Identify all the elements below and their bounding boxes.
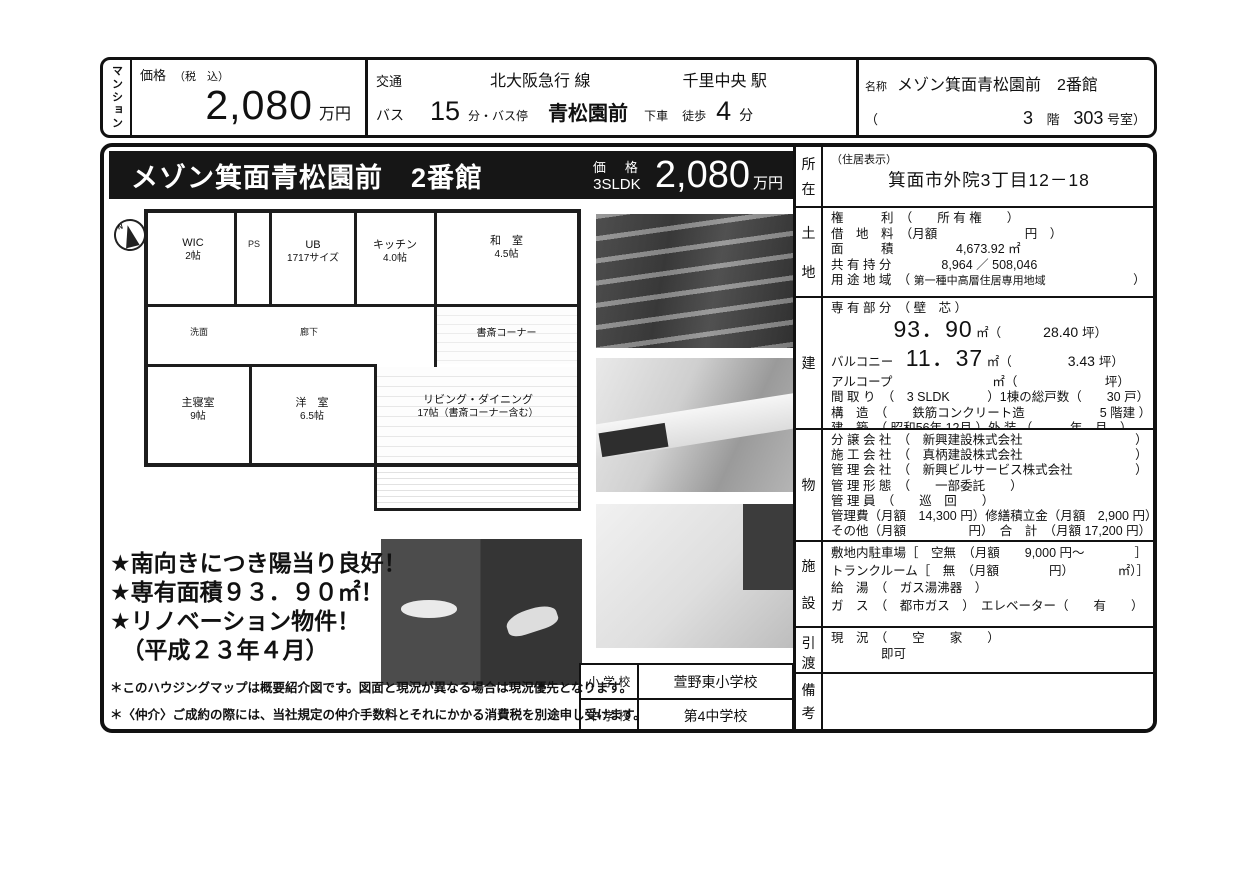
detail-segment: 第一種中高層住居専用地域 bbox=[914, 274, 1046, 290]
detail-segment: トランクルーム［ 無 （月額 円） ㎡）］ bbox=[831, 563, 1149, 581]
feature-line: ★南向きにつき陽当り良好！ bbox=[110, 549, 410, 578]
title-bar-name: メゾン箕面青松園前 2番館 bbox=[131, 156, 593, 195]
detail-row: （住居表示） bbox=[831, 150, 1147, 170]
floor-room-group: 3 階 303 号室） bbox=[1023, 108, 1146, 129]
room-kitchen-size: 4.0帖 bbox=[356, 252, 434, 265]
bus-label: バス bbox=[376, 105, 404, 125]
detail-segment: 3.43 bbox=[1012, 349, 1099, 374]
detail-row: 給 湯 （ ガス湯沸器 ） bbox=[831, 580, 1147, 598]
detail-section-label: 建 bbox=[796, 298, 823, 428]
details-table: 所在（住居表示）箕面市外院3丁目12－18土地権 利 （ 所 有 権 ）借 地 … bbox=[793, 147, 1153, 729]
room-ld-size: 17帖（書斎コーナー含む） bbox=[382, 407, 574, 420]
room-japanese-size: 4.5帖 bbox=[444, 248, 569, 261]
detail-row: 管 理 会 社 （ 新興ビルサービス株式会社 ） bbox=[831, 463, 1147, 478]
detail-row: 敷地内駐車場［ 空無 （月額 9,000 円～ ］ bbox=[831, 545, 1147, 563]
exterior-photo bbox=[596, 214, 794, 348]
detail-segment: 管 理 会 社 （ 新興ビルサービス株式会社 ） bbox=[831, 463, 1148, 478]
detail-row: 面 積 4,673.92 ㎡ bbox=[831, 242, 1147, 258]
disclaimer-line: ＊このハウジングマップは概要紹介図です。図面と現況が異なる場合は現況優先となりま… bbox=[110, 675, 580, 702]
detail-segment: 専 有 部 分 （ 壁 芯 ） bbox=[831, 301, 967, 317]
detail-section: 所在（住居表示）箕面市外院3丁目12－18 bbox=[796, 147, 1153, 206]
detail-segment: 即可 bbox=[831, 647, 906, 663]
detail-section-label: 物 bbox=[796, 430, 823, 540]
room-master-name: 主寝室 bbox=[158, 397, 238, 410]
detail-section: 土地権 利 （ 所 有 権 ）借 地 料 （月額 円 ）面 積 4,673.92… bbox=[796, 206, 1153, 296]
detail-row: 管 理 形 態 （ 一部委託 ） bbox=[831, 479, 1147, 494]
detail-row: 箕面市外院3丁目12－18 bbox=[831, 170, 1147, 190]
feature-list: ★南向きにつき陽当り良好！ ★専有面積９３．９０㎡！ ★リノベーション物件！ （… bbox=[110, 549, 410, 665]
category-vertical-label: マンション bbox=[109, 65, 125, 130]
room-study: 書斎コーナー bbox=[444, 327, 569, 340]
section-label-char: 在 bbox=[802, 179, 816, 199]
section-label-char: 物 bbox=[802, 475, 816, 495]
paren-open: （ bbox=[865, 109, 878, 128]
detail-row: 共 有 持 分 8,964 ／ 508,046 bbox=[831, 258, 1147, 274]
title-bar-price-labels: 価 格 3SLDK bbox=[593, 157, 641, 193]
room-master: 主寝室 9帖 bbox=[158, 397, 238, 423]
room-unit: 号室） bbox=[1107, 112, 1146, 127]
compass-needle bbox=[121, 224, 140, 249]
room-bath: UB 1717サイズ bbox=[274, 239, 352, 265]
detail-segment: 現 況 （ 空 家 ） bbox=[831, 631, 1000, 647]
detail-section-body: 敷地内駐車場［ 空無 （月額 9,000 円～ ］トランクルーム［ 無 （月額 … bbox=[823, 542, 1153, 626]
title-bar-price-unit: 万円 bbox=[753, 172, 783, 193]
room-wic: WIC 2帖 bbox=[158, 237, 228, 263]
wall bbox=[144, 364, 377, 367]
detail-row: 即可 bbox=[831, 647, 1147, 663]
section-label-char: 施 bbox=[802, 556, 816, 576]
title-bar-layout: 3SLDK bbox=[593, 176, 641, 193]
disclaimer-line: ＊〈仲介〉ご成約の際には、当社規定の仲介手数料とそれにかかる消費税を別途申し受け… bbox=[110, 702, 580, 729]
price-unit: 万円 bbox=[319, 100, 351, 124]
room-wic-name: WIC bbox=[158, 237, 228, 250]
detail-segment: （住居表示） bbox=[831, 150, 897, 170]
price-cell: 価格（税 込） 2,080 万円 bbox=[132, 60, 368, 135]
transport-label: 交通 bbox=[376, 71, 402, 90]
room-study-name: 書斎コーナー bbox=[444, 327, 569, 340]
detail-section: 物分 譲 会 社 （ 新興建設株式会社 ）施 工 会 社 （ 真柄建設株式会社 … bbox=[796, 428, 1153, 540]
detail-segment: アルコープ ㎡（ 坪） bbox=[831, 375, 1130, 391]
room-corridor: 廊下 bbox=[284, 327, 334, 337]
walk-minutes: 4 bbox=[716, 96, 731, 127]
section-label-char: 所 bbox=[802, 154, 816, 174]
floor-plan: WIC 2帖 PS UB 1717サイズ キッチン 4.0帖 和 室 4.5帖 bbox=[144, 209, 581, 529]
price-value: 2,080 bbox=[205, 82, 313, 129]
main-box: メゾン箕面青松園前 2番館 価 格 3SLDK 2,080 万円 N bbox=[100, 143, 1157, 733]
detail-section-label: 備考 bbox=[796, 674, 823, 729]
detail-segment: 用 途 地 域 （ bbox=[831, 273, 914, 289]
section-label-char: 備 bbox=[802, 680, 816, 700]
transport-cell: 交通 北大阪急行 線 千里中央 駅 バス 15 分・バス停 青松園前 下車 徒歩… bbox=[368, 60, 859, 135]
category-cell: マンション bbox=[103, 60, 132, 135]
detail-row: 93．90 ㎡（ 28.40 坪） bbox=[831, 317, 1147, 346]
section-label-char: 渡 bbox=[802, 653, 816, 672]
schools-table: 小 学 校 萱野東小学校 中 学 校 第4中学校 bbox=[579, 663, 794, 733]
detail-section-body: （住居表示）箕面市外院3丁目12－18 bbox=[823, 147, 1153, 206]
detail-section: 備考 bbox=[796, 672, 1153, 729]
detail-section-body: 分 譲 会 社 （ 新興建設株式会社 ）施 工 会 社 （ 真柄建設株式会社 ）… bbox=[823, 430, 1153, 540]
bathtub-photo bbox=[596, 504, 794, 648]
room-washroom-name: 洗面 bbox=[174, 327, 224, 337]
detail-segment: 分 譲 会 社 （ 新興建設株式会社 ） bbox=[831, 433, 1148, 448]
name-row: 名称 メゾン箕面青松園前 2番館 bbox=[865, 65, 1098, 95]
title-bar-price-value: 2,080 bbox=[655, 154, 750, 197]
room-bath-size: 1717サイズ bbox=[274, 252, 352, 265]
kitchen-photo bbox=[596, 358, 794, 492]
detail-segment: 坪） bbox=[1099, 350, 1124, 375]
room-japanese-name: 和 室 bbox=[444, 235, 569, 248]
washbasin-toilet-photo bbox=[381, 539, 582, 685]
wall bbox=[249, 364, 252, 467]
room-living-dining: リビング・ダイニング 17帖（書斎コーナー含む） bbox=[382, 394, 574, 420]
title-bar-price-label: 価 格 bbox=[593, 157, 641, 176]
detail-segment: 施 工 会 社 （ 真柄建設株式会社 ） bbox=[831, 448, 1148, 463]
detail-segment: ㎡（ bbox=[973, 321, 1001, 346]
detail-row: 管理費（月額 14,300 円）修繕積立金（月額 2,900 円） bbox=[831, 509, 1147, 524]
detail-segment: 面 積 4,673.92 ㎡ bbox=[831, 242, 1021, 258]
detail-segment bbox=[831, 321, 894, 346]
feature-line: ★専有面積９３．９０㎡！ bbox=[110, 578, 410, 607]
detail-segment: バルコニー bbox=[831, 350, 906, 375]
detail-segment: 給 湯 （ ガス湯沸器 ） bbox=[831, 580, 987, 598]
section-label-char: 建 bbox=[802, 353, 816, 373]
section-label-char: 土 bbox=[802, 223, 816, 243]
detail-segment: 建 築 （ 昭和56年 12月 ）外 装 （ 年 月 ） bbox=[831, 421, 1132, 428]
wall bbox=[374, 364, 377, 467]
detail-row: アルコープ ㎡（ 坪） bbox=[831, 375, 1147, 391]
detail-row: 用 途 地 域 （ 第一種中高層住居専用地域 ） bbox=[831, 273, 1147, 290]
detail-segment: 共 有 持 分 8,964 ／ 508,046 bbox=[831, 258, 1037, 274]
price-label: 価格 bbox=[140, 68, 166, 83]
detail-row: 現 況 （ 空 家 ） bbox=[831, 631, 1147, 647]
price-value-row: 2,080 万円 bbox=[205, 82, 351, 129]
detail-segment: 敷地内駐車場［ 空無 （月額 9,000 円～ ］ bbox=[831, 545, 1147, 563]
room-japanese: 和 室 4.5帖 bbox=[444, 235, 569, 261]
detail-segment: 箕面市外院3丁目12－18 bbox=[888, 170, 1090, 190]
detail-segment: 坪） bbox=[1082, 321, 1107, 346]
room-washroom: 洗面 bbox=[174, 327, 224, 337]
bus-minutes: 15 bbox=[430, 96, 460, 127]
detail-section: 建専 有 部 分 （ 壁 芯 ） 93．90 ㎡（ 28.40 坪）バルコニー … bbox=[796, 296, 1153, 428]
wall bbox=[234, 209, 237, 304]
wall bbox=[434, 209, 437, 367]
detail-section-body: 専 有 部 分 （ 壁 芯 ） 93．90 ㎡（ 28.40 坪）バルコニー 1… bbox=[823, 298, 1153, 428]
detail-row: 借 地 料 （月額 円 ） bbox=[831, 227, 1147, 243]
room-master-size: 9帖 bbox=[158, 410, 238, 423]
detail-section: 施設敷地内駐車場［ 空無 （月額 9,000 円～ ］トランクルーム［ 無 （月… bbox=[796, 540, 1153, 626]
property-name: メゾン箕面青松園前 2番館 bbox=[897, 71, 1098, 95]
detail-segment: 管 理 形 態 （ 一部委託 ） bbox=[831, 479, 1023, 494]
flyer-sheet: マンション 価格（税 込） 2,080 万円 交通 北大阪急行 線 千里中央 駅… bbox=[0, 0, 1258, 889]
walk-unit: 分 bbox=[739, 105, 753, 125]
detail-segment: 28.40 bbox=[1001, 320, 1082, 345]
room-row: （ 3 階 303 号室） bbox=[865, 108, 1146, 129]
detail-segment: 権 利 （ 所 有 権 ） bbox=[831, 211, 1019, 227]
detail-row: 施 工 会 社 （ 真柄建設株式会社 ） bbox=[831, 448, 1147, 463]
room-ld-name: リビング・ダイニング bbox=[382, 394, 574, 407]
detail-segment: 管 理 員 （ 巡 回 ） bbox=[831, 494, 994, 509]
detail-row: 分 譲 会 社 （ 新興建設株式会社 ） bbox=[831, 433, 1147, 448]
balcony bbox=[374, 467, 581, 511]
detail-section-body: 権 利 （ 所 有 権 ）借 地 料 （月額 円 ）面 積 4,673.92 ㎡… bbox=[823, 208, 1153, 296]
section-label-char: 引 bbox=[802, 633, 816, 653]
walk-label: 徒歩 bbox=[682, 107, 706, 124]
bus-stop-name: 青松園前 bbox=[548, 97, 628, 126]
detail-section: 引渡現 況 （ 空 家 ） 即可 bbox=[796, 626, 1153, 672]
detail-row: 建 築 （ 昭和56年 12月 ）外 装 （ 年 月 ） bbox=[831, 421, 1147, 428]
detail-row: 間 取 り （ 3 SLDK ）1棟の総戸数（ 30 戸） bbox=[831, 390, 1147, 406]
detail-section-label: 土地 bbox=[796, 208, 823, 296]
detail-segment: 間 取 り （ 3 SLDK ）1棟の総戸数（ 30 戸） bbox=[831, 390, 1149, 406]
detail-segment: 管理費（月額 14,300 円）修繕積立金（月額 2,900 円） bbox=[831, 509, 1153, 524]
room-corridor-name: 廊下 bbox=[284, 327, 334, 337]
alight-label: 下車 bbox=[644, 107, 668, 124]
wall bbox=[269, 209, 272, 304]
feature-line: （平成２３年４月） bbox=[110, 636, 410, 665]
detail-segment: 93．90 bbox=[894, 317, 973, 342]
detail-segment: ガ ス （ 都市ガス ） エレベーター（ 有 ） bbox=[831, 598, 1144, 616]
detail-segment: 構 造 （ 鉄筋コンクリート造 5 階建 ） bbox=[831, 406, 1151, 422]
detail-segment: 11．37 bbox=[906, 346, 983, 371]
detail-segment: 借 地 料 （月額 円 ） bbox=[831, 227, 1062, 243]
detail-row: その他（月額 円） 合 計 （月額 17,200 円） bbox=[831, 524, 1147, 539]
detail-row: 専 有 部 分 （ 壁 芯 ） bbox=[831, 301, 1147, 317]
title-bar: メゾン箕面青松園前 2番館 価 格 3SLDK 2,080 万円 bbox=[109, 151, 793, 199]
room-ps-name: PS bbox=[244, 239, 264, 249]
bus-stop-label: 分・バス停 bbox=[468, 107, 528, 124]
room-wic-size: 2帖 bbox=[158, 250, 228, 263]
detail-section-label: 引渡 bbox=[796, 628, 823, 672]
detail-row: 管 理 員 （ 巡 回 ） bbox=[831, 494, 1147, 509]
wall bbox=[144, 304, 581, 307]
detail-section-label: 所在 bbox=[796, 147, 823, 206]
detail-row: 構 造 （ 鉄筋コンクリート造 5 階建 ） bbox=[831, 406, 1147, 422]
transport-bus-row: バス 15 分・バス停 青松園前 下車 徒歩 4 分 bbox=[376, 96, 753, 127]
detail-section-body bbox=[823, 674, 1153, 729]
room-western-size: 6.5帖 bbox=[272, 410, 352, 423]
disclaimer-block: ＊このハウジングマップは概要紹介図です。図面と現況が異なる場合は現況優先となりま… bbox=[110, 675, 580, 729]
transport-line: 北大阪急行 線 bbox=[490, 67, 590, 91]
detail-row: 権 利 （ 所 有 権 ） bbox=[831, 211, 1147, 227]
detail-segment: その他（月額 円） 合 計 （月額 17,200 円） bbox=[831, 524, 1151, 539]
transport-line-row: 交通 北大阪急行 線 千里中央 駅 bbox=[376, 67, 864, 91]
section-label-char: 設 bbox=[802, 593, 816, 613]
junior-high-name: 第4中学校 bbox=[639, 700, 792, 731]
title-bar-price-group: 価 格 3SLDK 2,080 万円 bbox=[593, 154, 783, 197]
top-header: マンション 価格（税 込） 2,080 万円 交通 北大阪急行 線 千里中央 駅… bbox=[100, 57, 1157, 138]
room-ps: PS bbox=[244, 239, 264, 249]
section-label-char: 考 bbox=[802, 703, 816, 723]
transport-station: 千里中央 駅 bbox=[682, 67, 766, 91]
detail-section-body: 現 況 （ 空 家 ） 即可 bbox=[823, 628, 1153, 672]
room-number: 303 bbox=[1073, 108, 1103, 128]
room-bath-name: UB bbox=[274, 239, 352, 252]
main-inner: メゾン箕面青松園前 2番館 価 格 3SLDK 2,080 万円 N bbox=[104, 147, 1153, 729]
detail-segment: ㎡（ bbox=[983, 350, 1011, 375]
name-label: 名称 bbox=[865, 78, 887, 94]
section-label-char: 地 bbox=[802, 262, 816, 282]
detail-row: バルコニー 11．37 ㎡（ 3.43 坪） bbox=[831, 346, 1147, 375]
detail-row: ガ ス （ 都市ガス ） エレベーター（ 有 ） bbox=[831, 598, 1147, 616]
floor-number: 3 bbox=[1023, 108, 1033, 128]
detail-row: トランクルーム［ 無 （月額 円） ㎡）］ bbox=[831, 563, 1147, 581]
feature-line: ★リノベーション物件！ bbox=[110, 607, 410, 636]
detail-segment: ） bbox=[1046, 273, 1146, 289]
detail-section-label: 施設 bbox=[796, 542, 823, 626]
elementary-school-name: 萱野東小学校 bbox=[639, 665, 792, 698]
room-kitchen: キッチン 4.0帖 bbox=[356, 239, 434, 265]
room-western-name: 洋 室 bbox=[272, 397, 352, 410]
room-kitchen-name: キッチン bbox=[356, 239, 434, 252]
room-western: 洋 室 6.5帖 bbox=[272, 397, 352, 423]
name-cell: 名称 メゾン箕面青松園前 2番館 （ 3 階 303 号室） bbox=[859, 60, 1154, 135]
floor-unit: 階 bbox=[1047, 112, 1060, 127]
